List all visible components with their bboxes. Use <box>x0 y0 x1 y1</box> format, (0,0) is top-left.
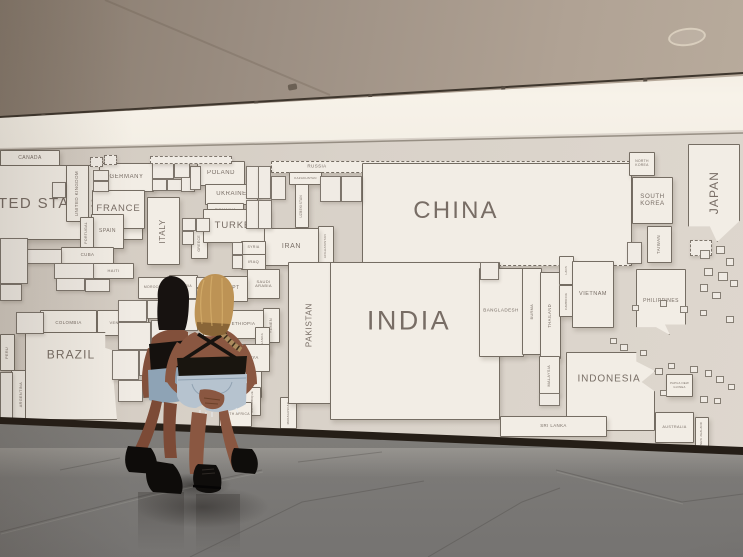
map-label-kazakhstan: KAZAKHSTAN <box>294 177 316 180</box>
map-island <box>726 316 734 323</box>
map-shape <box>539 393 560 406</box>
map-shape <box>480 262 499 280</box>
map-shape <box>56 278 85 291</box>
map-shape <box>190 166 201 190</box>
visitor-right-boot <box>231 448 258 474</box>
map-island <box>716 246 725 254</box>
map-label-greece: GREECE <box>198 235 202 252</box>
map-shape <box>54 263 94 279</box>
map-island <box>716 376 724 383</box>
map-label-madagascar: MADAGASCAR <box>287 402 290 424</box>
visitor-left-leg <box>134 400 162 454</box>
map-label-ukraine: UKRAINE <box>216 191 246 197</box>
map-label-canada: CANADA <box>18 156 42 161</box>
map-label-iran: IRAN <box>282 243 301 251</box>
map-label-brazil: BRAZIL <box>47 349 96 362</box>
map-country-italy: ITALY <box>147 197 180 265</box>
map-label-colombia: COLOMBIA <box>55 321 81 326</box>
map-label-indonesia: INDONESIA <box>577 375 640 386</box>
map-shape <box>93 181 109 192</box>
map-label-peru: PERU <box>5 347 9 359</box>
map-label-south-korea: SOUTH KOREA <box>633 194 672 207</box>
map-shape <box>16 312 44 334</box>
map-label-thailand: THAILAND <box>548 304 553 328</box>
map-label-new-zealand: NEW ZEALAND <box>700 422 703 445</box>
map-country-peru: PERU <box>0 334 15 371</box>
map-label-uzbekistan: UZBEKISTAN <box>300 195 303 218</box>
map-island <box>632 305 639 311</box>
map-label-vietnam: VIETNAM <box>579 292 607 298</box>
map-shape <box>174 163 190 178</box>
map-label-north-korea: NORTH KOREA <box>630 160 654 167</box>
map-island <box>620 344 628 351</box>
map-island <box>705 370 712 377</box>
map-country-papua-new-guinea: PAPUA NEW GUINEA <box>666 374 693 397</box>
map-island <box>728 384 735 390</box>
map-island <box>712 292 721 299</box>
map-label-cambodia: CAMBODIA <box>565 293 568 310</box>
map-label-sri-lanka: SRI LANKA <box>540 424 567 429</box>
map-island <box>660 390 667 396</box>
map-shape <box>0 372 13 420</box>
map-country-iran: IRAN <box>264 228 319 266</box>
map-island <box>730 280 738 287</box>
gallery-photo: CANADAUNITED STATESUNITED KINGDOMGERMANY… <box>0 0 743 557</box>
map-label-laos: LAOS <box>565 266 568 274</box>
map-shape <box>196 218 210 232</box>
map-shape <box>152 179 167 191</box>
map-label-portugal: PORTUGAL <box>85 222 89 244</box>
map-country-united-kingdom: UNITED KINGDOM <box>66 165 89 222</box>
map-label-malaysia: MALAYSIA <box>547 365 551 386</box>
map-label-pakistan: PAKISTAN <box>306 303 315 347</box>
map-shape <box>150 156 232 164</box>
map-shape <box>167 179 182 191</box>
map-label-papua-new-guinea: PAPUA NEW GUINEA <box>667 382 692 388</box>
map-country-burma: BURMA <box>522 268 542 355</box>
map-island <box>700 396 708 403</box>
map-label-syria: SYRIA <box>247 246 259 250</box>
map-country-syria: SYRIA <box>241 241 266 255</box>
map-shape <box>182 231 194 245</box>
map-island <box>718 272 728 281</box>
map-country-vietnam: VIETNAM <box>572 261 614 328</box>
map-shape <box>320 176 341 202</box>
map-country-sri-lanka: SRI LANKA <box>500 416 607 437</box>
map-country-poland: POLAND <box>197 161 245 186</box>
map-island <box>700 284 708 292</box>
map-country-south-korea: SOUTH KOREA <box>632 177 673 224</box>
map-island <box>700 310 707 316</box>
map-country-spain: SPAIN <box>91 214 124 249</box>
map-label-china: CHINA <box>413 198 498 224</box>
map-island <box>704 268 713 276</box>
map-label-bangladesh: BANGLADESH <box>483 309 519 314</box>
map-island <box>714 398 721 404</box>
map-country-north-korea: NORTH KOREA <box>629 152 655 176</box>
map-label-australia: AUSTRALIA <box>662 425 686 429</box>
map-shape <box>271 176 286 200</box>
map-island <box>680 306 688 313</box>
map-country-new-zealand: NEW ZEALAND <box>695 417 709 449</box>
map-country-pakistan: PAKISTAN <box>288 262 332 404</box>
map-country-portugal: PORTUGAL <box>80 217 94 249</box>
map-shape <box>90 157 103 167</box>
map-label-japan: JAPAN <box>708 171 721 214</box>
map-label-taiwan: TAIWAN <box>657 235 662 254</box>
map-country-bangladesh: BANGLADESH <box>479 268 524 357</box>
map-country-taiwan: TAIWAN <box>647 226 672 263</box>
map-shape <box>104 155 117 165</box>
map-shape <box>232 242 243 255</box>
visitor-left-leg <box>163 402 177 458</box>
map-shape <box>52 182 66 198</box>
map-label-burma: BURMA <box>530 304 534 319</box>
map-country-australia: AUSTRALIA <box>655 412 694 443</box>
map-shape <box>258 200 272 229</box>
map-island <box>700 250 710 259</box>
visitors <box>100 262 280 507</box>
map-island <box>610 338 617 344</box>
map-label-spain: SPAIN <box>99 229 116 234</box>
map-label-poland: POLAND <box>207 170 235 176</box>
map-country-china: CHINA <box>362 163 632 266</box>
map-island <box>690 366 698 373</box>
visitor-left-boot <box>146 460 183 494</box>
map-label-india: INDIA <box>367 306 451 335</box>
map-country-uzbekistan: UZBEKISTAN <box>295 184 309 228</box>
map-label-cuba: CUBA <box>81 253 95 258</box>
map-shape <box>341 176 362 202</box>
map-island <box>640 350 647 356</box>
map-label-italy: ITALY <box>159 219 168 244</box>
map-shape <box>0 238 28 284</box>
map-shape <box>258 166 271 199</box>
map-island <box>726 258 734 266</box>
visitor-right-hair-shadow <box>197 322 230 336</box>
map-island <box>660 300 667 307</box>
map-label-germany: GERMANY <box>109 174 143 180</box>
ceiling-seam <box>105 0 330 95</box>
map-label-russia: RUSSIA <box>307 165 326 170</box>
map-shape <box>182 218 196 231</box>
map-shape <box>627 242 642 264</box>
map-island <box>668 363 675 369</box>
map-label-argentina: ARGENTINA <box>19 382 23 407</box>
map-country-afghanistan: AFGHANISTAN <box>318 226 334 266</box>
map-shape <box>0 284 22 301</box>
map-country-thailand: THAILAND <box>540 272 561 359</box>
map-country-india: INDIA <box>330 262 500 420</box>
map-shape <box>152 163 174 179</box>
visitor-left-hair <box>157 276 189 330</box>
map-label-afghanistan: AFGHANISTAN <box>324 234 327 258</box>
map-shape <box>93 170 109 181</box>
map-country-malaysia: MALAYSIA <box>539 356 560 395</box>
map-island <box>655 368 663 375</box>
map-label-united-kingdom: UNITED KINGDOM <box>75 171 80 216</box>
